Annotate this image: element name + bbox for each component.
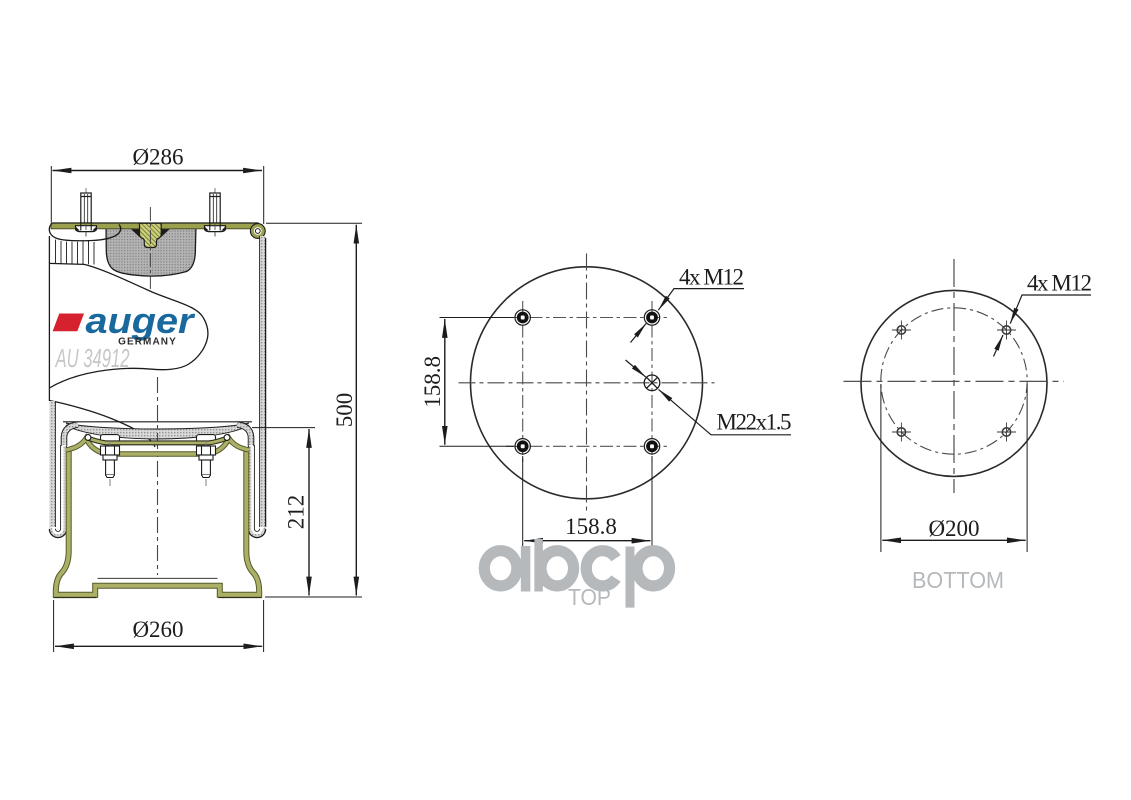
svg-text:158.8: 158.8 — [565, 514, 617, 539]
svg-text:BOTTOM: BOTTOM — [912, 567, 1004, 593]
svg-text:TOP: TOP — [568, 584, 611, 610]
svg-text:212: 212 — [284, 495, 309, 530]
svg-text:auger: auger — [86, 300, 196, 341]
svg-text:Ø286: Ø286 — [132, 145, 183, 170]
svg-text:Ø260: Ø260 — [132, 617, 183, 642]
svg-text:AU 34912: AU 34912 — [54, 343, 130, 373]
svg-text:M22x1.5: M22x1.5 — [717, 410, 792, 435]
svg-text:Ø200: Ø200 — [928, 516, 979, 541]
svg-text:4x M12: 4x M12 — [679, 264, 744, 289]
svg-text:158.8: 158.8 — [420, 356, 445, 408]
svg-text:4x M12: 4x M12 — [1027, 271, 1092, 296]
svg-text:500: 500 — [332, 393, 357, 428]
